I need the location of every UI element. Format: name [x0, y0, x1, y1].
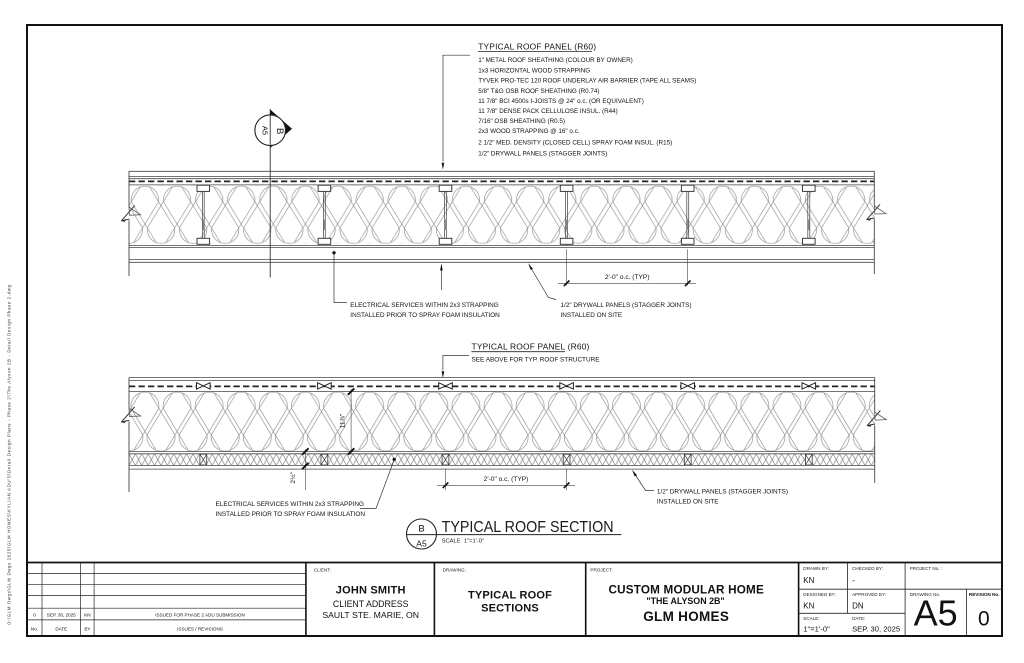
svg-text:INSTALLED ON SITE: INSTALLED ON SITE	[657, 498, 719, 505]
svg-text:CLIENT ADDRESS: CLIENT ADDRESS	[333, 599, 409, 609]
svg-text:TYPICAL ROOF SECTION: TYPICAL ROOF SECTION	[442, 519, 614, 536]
svg-text:DRAWING:: DRAWING:	[443, 567, 466, 572]
svg-text:TYPICAL ROOF PANEL (R60): TYPICAL ROOF PANEL (R60)	[478, 42, 596, 52]
svg-text:11⅞": 11⅞"	[339, 413, 346, 428]
svg-text:DRAWN BY:: DRAWN BY:	[803, 566, 829, 571]
svg-text:JOHN SMITH: JOHN SMITH	[336, 585, 406, 597]
svg-text:TYPICAL ROOF PANEL (R60): TYPICAL ROOF PANEL (R60)	[472, 342, 590, 352]
svg-text:SEE ABOVE FOR TYP. ROOF STRUCT: SEE ABOVE FOR TYP. ROOF STRUCTURE	[472, 356, 600, 363]
svg-text:BY: BY	[84, 626, 90, 631]
svg-text:SAULT STE. MARIE, ON: SAULT STE. MARIE, ON	[322, 610, 419, 620]
svg-text:A5: A5	[416, 539, 427, 549]
svg-text:SCALE:: SCALE:	[803, 616, 819, 621]
svg-text:11 7/8" DENSE PACK CELLULOSE I: 11 7/8" DENSE PACK CELLULOSE INSUL. (R44…	[478, 108, 618, 115]
svg-text:TYPICAL ROOF: TYPICAL ROOF	[468, 589, 552, 601]
svg-text:GLM HOMES: GLM HOMES	[643, 609, 729, 624]
svg-text:INSTALLED PRIOR TO SPRAY FOAM: INSTALLED PRIOR TO SPRAY FOAM INSULATION	[350, 312, 500, 319]
svg-text:2'-0" o.c. (TYP): 2'-0" o.c. (TYP)	[484, 476, 529, 483]
svg-text:DATE: DATE	[55, 626, 67, 631]
svg-text:SECTIONS: SECTIONS	[481, 603, 539, 615]
svg-text:11 7/8" BCI 4500s I-JOISTS @ 2: 11 7/8" BCI 4500s I-JOISTS @ 24" o.c. (O…	[478, 98, 644, 105]
svg-text:PROJECT:: PROJECT:	[590, 567, 612, 572]
svg-text:CHECKED BY:: CHECKED BY:	[852, 566, 883, 571]
svg-text:DATE:: DATE:	[852, 616, 865, 621]
svg-text:1/2" DRYWALL PANELS (STAGGER J: 1/2" DRYWALL PANELS (STAGGER JOINTS)	[561, 302, 692, 309]
svg-text:2'-0" o.c. (TYP): 2'-0" o.c. (TYP)	[605, 274, 650, 281]
svg-text:SCALE 1"=1'-0": SCALE 1"=1'-0"	[442, 538, 484, 544]
svg-text:TYVEK PRO-TEC 120 ROOF UNDERLA: TYVEK PRO-TEC 120 ROOF UNDERLAY AIR BARR…	[478, 78, 696, 85]
svg-text:ISSUES / REVISIONS: ISSUES / REVISIONS	[177, 626, 223, 631]
svg-text:ELECTRICAL SERVICES WITHIN 2x3: ELECTRICAL SERVICES WITHIN 2x3 STRAPPING	[350, 302, 498, 309]
svg-text:1"=1'-0": 1"=1'-0"	[803, 625, 830, 634]
svg-text:5/8" T&G OSB ROOF SHEATHING (R: 5/8" T&G OSB ROOF SHEATHING (R0.74)	[478, 88, 599, 95]
svg-text:1/2" DRYWALL PANELS (STAGGER J: 1/2" DRYWALL PANELS (STAGGER JOINTS)	[657, 488, 788, 495]
svg-text:0: 0	[978, 608, 990, 631]
svg-text:A5: A5	[914, 593, 958, 634]
svg-text:1/2" DRYWALL PANELS (STAGGER J: 1/2" DRYWALL PANELS (STAGGER JOINTS)	[478, 150, 607, 157]
svg-text:No.: No.	[31, 626, 38, 631]
svg-text:REVISION No.: REVISION No.	[969, 592, 1000, 597]
svg-text:B: B	[418, 524, 424, 535]
svg-text:SEP. 30, 2025: SEP. 30, 2025	[852, 625, 900, 634]
svg-text:B: B	[274, 128, 285, 134]
svg-text:"THE ALYSON 2B": "THE ALYSON 2B"	[646, 596, 724, 606]
svg-text:A5: A5	[261, 126, 270, 135]
svg-text:0: 0	[33, 612, 36, 617]
svg-text:O:\GLM Dwgs\GLM Dwgs 2025\GLM: O:\GLM Dwgs\GLM Dwgs 2025\GLM HOMES\KYLI…	[7, 284, 12, 625]
svg-text:1x3 HORIZONTAL WOOD STRAPPING: 1x3 HORIZONTAL WOOD STRAPPING	[478, 67, 590, 74]
svg-text:1" METAL ROOF SHEATHING (COLOU: 1" METAL ROOF SHEATHING (COLOUR BY OWNER…	[478, 57, 633, 64]
svg-text:SEP. 30, 2025: SEP. 30, 2025	[47, 612, 76, 617]
svg-text:CLIENT:: CLIENT:	[314, 567, 331, 572]
svg-text:APPROVED BY:: APPROVED BY:	[852, 592, 886, 597]
svg-text:CUSTOM MODULAR HOME: CUSTOM MODULAR HOME	[608, 584, 764, 597]
svg-text:KN: KN	[803, 576, 814, 585]
svg-text:PROJECT No. :: PROJECT No. :	[910, 566, 942, 571]
svg-text:DESIGNED BY:: DESIGNED BY:	[803, 592, 835, 597]
svg-text:2½": 2½"	[289, 471, 297, 483]
svg-text:7/16" OSB SHEATHING (R0.5): 7/16" OSB SHEATHING (R0.5)	[478, 118, 565, 125]
svg-text:KN: KN	[803, 602, 814, 611]
svg-text:ELECTRICAL SERVICES WITHIN 2x3: ELECTRICAL SERVICES WITHIN 2x3 STRAPPING	[216, 501, 364, 508]
svg-text:INSTALLED PRIOR TO SPRAY FOAM: INSTALLED PRIOR TO SPRAY FOAM INSULATION	[216, 511, 366, 518]
svg-text:INSTALLED ON SITE: INSTALLED ON SITE	[561, 312, 623, 319]
svg-text:2x3 WOOD STRAPPING @ 16" o.c.: 2x3 WOOD STRAPPING @ 16" o.c.	[478, 128, 580, 135]
svg-text:KN: KN	[84, 612, 90, 617]
svg-text:-: -	[852, 576, 855, 585]
svg-text:DN: DN	[852, 602, 864, 611]
svg-text:ISSUED FOR PHASE 2 ADU SUBMISS: ISSUED FOR PHASE 2 ADU SUBMISSION	[155, 612, 245, 617]
svg-text:2 1/2" MED. DENSITY (CLOSED CE: 2 1/2" MED. DENSITY (CLOSED CELL) SPRAY …	[478, 139, 672, 146]
